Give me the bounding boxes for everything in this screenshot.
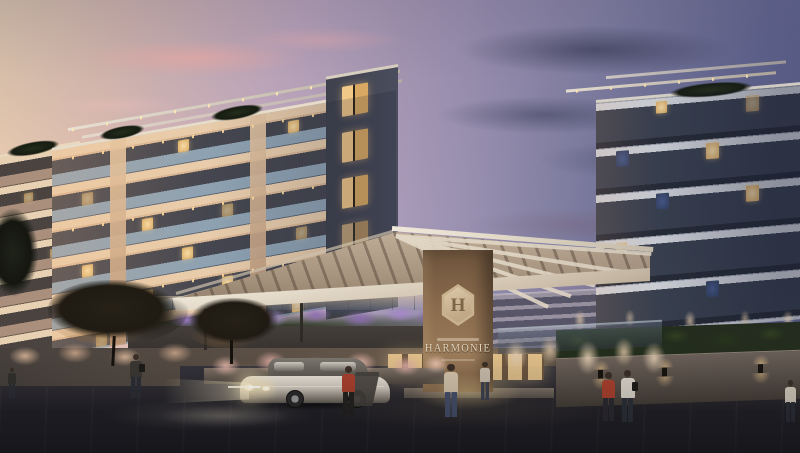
grass-planting bbox=[0, 340, 210, 374]
lit-window bbox=[222, 203, 233, 217]
person-torso bbox=[785, 387, 796, 403]
person-head bbox=[624, 370, 631, 377]
dark-window bbox=[706, 280, 719, 297]
pedestrian-with-bag bbox=[130, 354, 142, 398]
pedestrian bbox=[8, 368, 16, 398]
dark-window bbox=[616, 150, 629, 167]
balcony-downlights bbox=[72, 174, 382, 232]
lit-window bbox=[182, 246, 193, 260]
lit-window bbox=[706, 142, 719, 159]
couple-woman bbox=[621, 370, 635, 422]
person-torso bbox=[602, 380, 615, 399]
sign-caption-line bbox=[441, 359, 475, 361]
render-scene: H HARMONIE bbox=[0, 0, 800, 453]
shoulder-bag bbox=[632, 382, 638, 391]
lit-window bbox=[82, 264, 93, 278]
person-legs bbox=[481, 382, 489, 400]
man-by-car bbox=[342, 366, 355, 415]
car-headlight bbox=[262, 386, 270, 391]
person-head bbox=[133, 354, 139, 360]
woman-at-door bbox=[480, 362, 490, 400]
lit-window bbox=[142, 217, 153, 231]
corner-lit-window bbox=[342, 174, 368, 209]
person-torso bbox=[8, 373, 16, 384]
sign-badge-hexagon: H bbox=[440, 284, 476, 326]
person-legs bbox=[343, 392, 353, 415]
lit-window bbox=[288, 119, 299, 133]
couple-man bbox=[602, 372, 615, 421]
lit-window bbox=[746, 95, 759, 112]
person-head bbox=[10, 368, 14, 372]
pedestrian-right-edge bbox=[785, 380, 796, 422]
person-legs bbox=[603, 398, 613, 421]
car-window-glint bbox=[274, 362, 304, 371]
sign-caption-line bbox=[437, 338, 479, 341]
lit-window bbox=[296, 226, 307, 240]
shoulder-bag bbox=[139, 364, 145, 372]
pampas-grass bbox=[492, 330, 672, 382]
tree-trunk bbox=[230, 340, 233, 364]
sign-badge-inner: H bbox=[443, 287, 473, 323]
car-wheel bbox=[286, 390, 304, 408]
person-torso bbox=[480, 368, 490, 382]
man-at-entrance bbox=[444, 364, 458, 417]
lit-window bbox=[178, 139, 189, 153]
corner-lit-window bbox=[342, 128, 368, 163]
lit-window bbox=[746, 185, 759, 202]
person-head bbox=[447, 364, 454, 371]
person-legs bbox=[9, 384, 15, 398]
canopy-post bbox=[300, 300, 303, 342]
person-torso bbox=[444, 372, 458, 392]
lit-window bbox=[656, 101, 667, 114]
person-legs bbox=[786, 402, 795, 422]
person-head bbox=[345, 366, 352, 373]
person-legs bbox=[622, 398, 633, 423]
person-legs bbox=[131, 377, 141, 398]
person-torso bbox=[342, 374, 355, 393]
lit-window bbox=[82, 192, 93, 206]
person-head bbox=[605, 372, 612, 379]
person-head bbox=[482, 362, 487, 367]
wall-sconce-light bbox=[758, 364, 763, 373]
person-head bbox=[788, 380, 794, 386]
lit-window bbox=[24, 192, 33, 203]
corner-lit-window bbox=[342, 82, 368, 117]
sign-monogram: H bbox=[451, 296, 466, 315]
right-tower bbox=[596, 82, 800, 337]
dark-window bbox=[656, 193, 669, 210]
person-legs bbox=[445, 392, 456, 417]
